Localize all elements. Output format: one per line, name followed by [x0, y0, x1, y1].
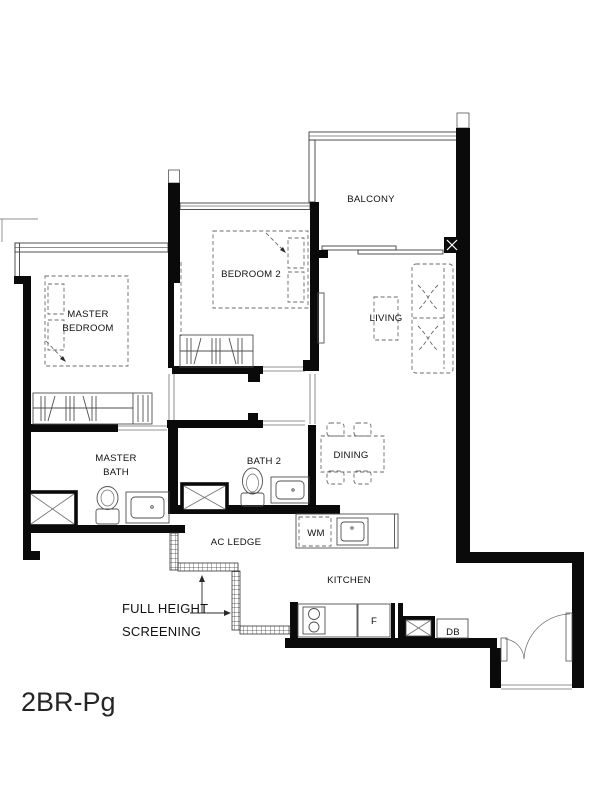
balcony-sliding-door [322, 246, 443, 254]
label-master-bath-line1: MASTER [95, 453, 136, 464]
balcony-parapet [309, 132, 457, 202]
master-bedroom-window [15, 243, 168, 277]
label-living: LIVING [370, 313, 403, 324]
stove [298, 604, 357, 637]
label-kitchen: KITCHEN [327, 575, 371, 586]
wall-cap-top-left [169, 170, 180, 183]
master-bath-door [118, 426, 167, 430]
label-ac-ledge: AC LEDGE [211, 537, 262, 548]
bath2-vanity [271, 477, 309, 503]
entry-door-leaf-small [505, 639, 524, 659]
bath2-toilet [241, 468, 264, 506]
master-bed [45, 276, 128, 366]
shaft-box [402, 616, 435, 640]
master-bedroom-door [169, 374, 174, 424]
bath2-door [263, 421, 305, 425]
neighbour-boundary-line [0, 219, 38, 242]
floorplan-svg: BALCONY BEDROOM 2 MASTER BEDROOM LIVING … [0, 0, 600, 800]
master-shower [29, 492, 76, 526]
label-master-bath-line2: BATH [103, 467, 129, 478]
kitchen-counter-bottom [298, 604, 468, 638]
sofa [412, 264, 453, 373]
master-toilet [96, 487, 119, 525]
master-wardrobe [33, 393, 152, 424]
entry-door [501, 613, 572, 689]
label-dining: DINING [333, 450, 368, 461]
label-bedroom2: BEDROOM 2 [221, 269, 281, 280]
bedroom2-window [180, 203, 310, 210]
label-screening-line2: SCREENING [122, 624, 201, 639]
corridor-dining-opening [310, 374, 315, 424]
floorplan-page: BALCONY BEDROOM 2 MASTER BEDROOM LIVING … [0, 0, 600, 800]
master-bath-fixtures [29, 487, 169, 527]
plan-title: 2BR-Pg [21, 687, 116, 717]
label-bath2: BATH 2 [247, 456, 281, 467]
bath2-fixtures [182, 468, 309, 511]
screening-hatch [170, 533, 290, 634]
label-balcony: BALCONY [347, 194, 395, 205]
label-db: DB [446, 627, 460, 638]
label-screening-line1: FULL HEIGHT [122, 601, 208, 616]
bedroom2-door [263, 367, 305, 371]
label-fridge: F [371, 616, 377, 627]
balcony-ac-box [444, 237, 460, 253]
bedroom2-wardrobe [180, 335, 253, 367]
wall-cap-top-right [457, 113, 469, 128]
master-vanity [126, 492, 169, 523]
bedroom2-bed [181, 231, 308, 336]
kitchen-sink [337, 518, 368, 545]
entry-door-leaf-main [524, 614, 570, 659]
entry-door-jamb-left [501, 638, 507, 661]
bath2-shower [182, 484, 227, 511]
entry-door-jamb-right [566, 613, 572, 661]
label-master-bedroom-line2: BEDROOM [62, 323, 113, 334]
label-master-bedroom-line1: MASTER [67, 309, 108, 320]
walls [14, 113, 584, 688]
label-wm: WM [307, 528, 325, 539]
